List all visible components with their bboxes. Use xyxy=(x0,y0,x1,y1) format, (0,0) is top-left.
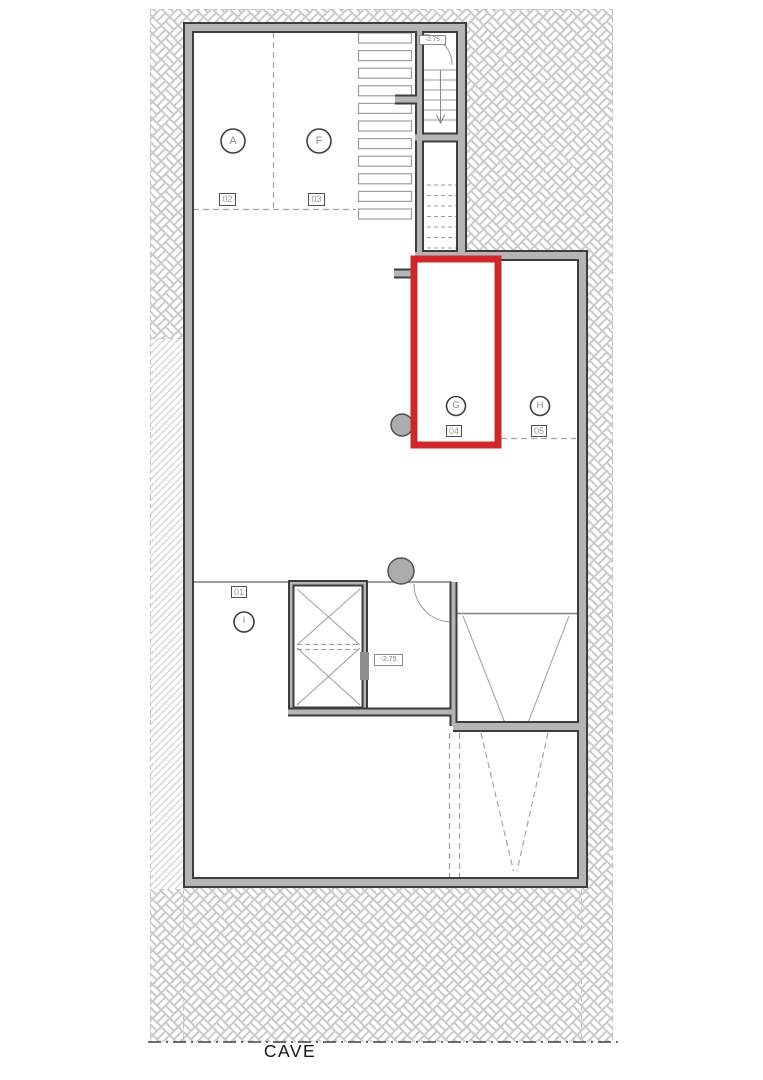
floor-plan-drawing xyxy=(0,0,763,1080)
room-letter-h: H xyxy=(532,401,548,411)
floor-plan-page: A F G H I 02 03 04 05 01 -2.75 -2.75 CAV… xyxy=(0,0,763,1080)
room-number-03: 03 xyxy=(308,193,325,206)
room-letter-i: I xyxy=(236,616,252,626)
elevator-door xyxy=(360,652,369,680)
room-letter-g: G xyxy=(448,401,464,411)
stripe-hatch xyxy=(359,33,412,219)
room-letter-a: A xyxy=(225,135,241,147)
column-lower xyxy=(388,558,414,584)
room-number-05: 05 xyxy=(531,425,547,437)
room-number-04: 04 xyxy=(446,425,462,437)
column-upper xyxy=(391,414,413,436)
elevation-label-hall: -2.75 xyxy=(374,654,403,666)
room-letter-f: F xyxy=(311,135,327,147)
plan-title: CAVE xyxy=(230,1041,350,1062)
room-number-02: 02 xyxy=(219,193,236,206)
room-number-01: 01 xyxy=(231,586,247,598)
elevation-label-stair: -2.75 xyxy=(419,35,446,45)
